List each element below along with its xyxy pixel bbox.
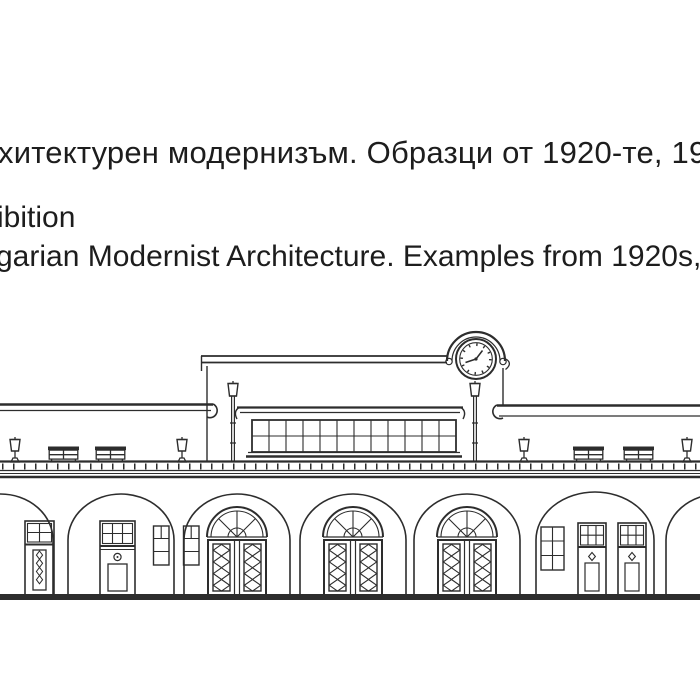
wide-bay-doors	[578, 523, 646, 595]
wide-bay-window	[541, 527, 564, 570]
narrow-door	[25, 521, 54, 595]
right-volute-icon	[500, 358, 506, 364]
station-elevation-drawing	[0, 0, 700, 700]
clerestory-window-band	[235, 408, 464, 457]
single-door-with-transom	[100, 521, 135, 595]
ground-line	[0, 594, 700, 600]
fanlight-double-doors	[207, 507, 497, 595]
left-volute-icon	[446, 358, 452, 364]
stair-windows	[154, 526, 200, 565]
platform-edge	[0, 462, 700, 478]
clock-icon	[456, 339, 496, 379]
right-wing-roof	[493, 405, 700, 419]
benches	[48, 447, 654, 463]
left-wing-roof	[0, 404, 217, 418]
